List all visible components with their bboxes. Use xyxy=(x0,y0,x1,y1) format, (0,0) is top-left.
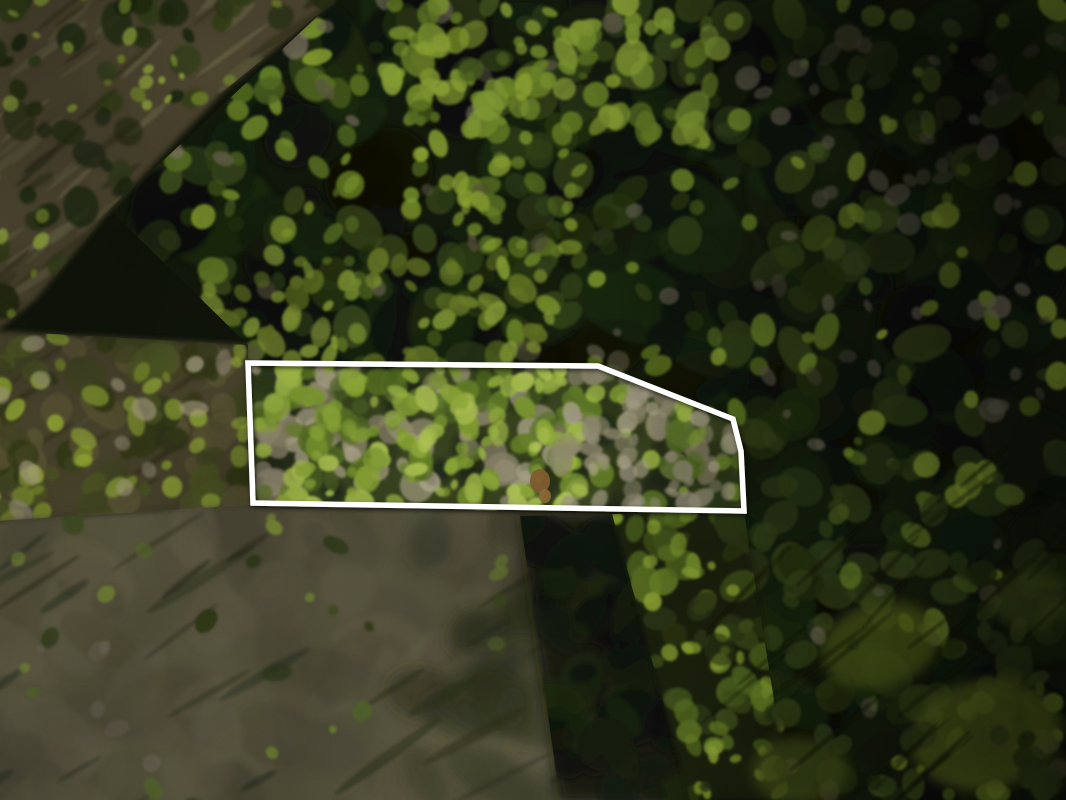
photo-grain xyxy=(0,0,1066,800)
scene-svg xyxy=(0,0,1066,800)
aerial-photo xyxy=(0,0,1066,800)
